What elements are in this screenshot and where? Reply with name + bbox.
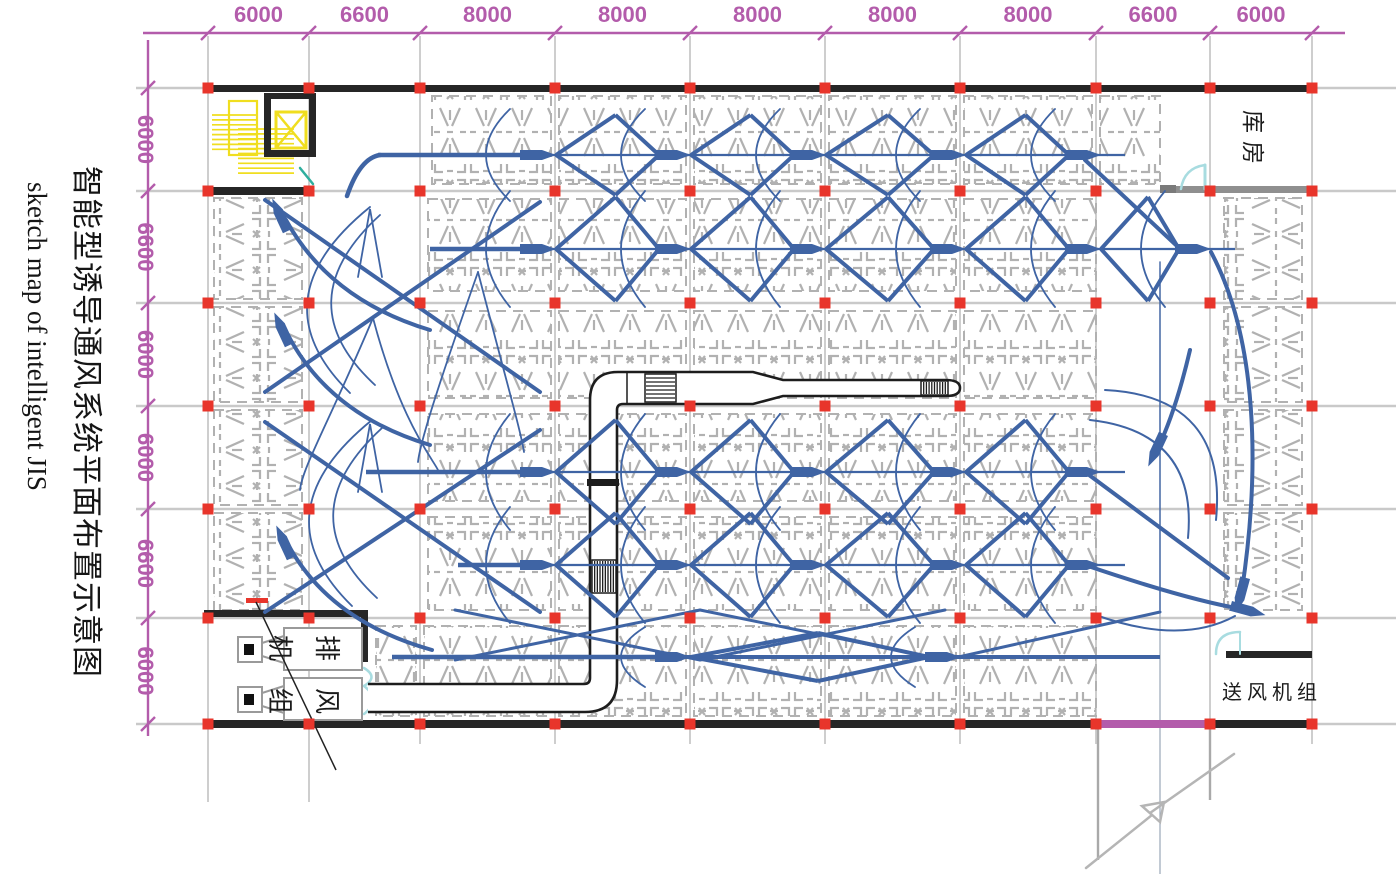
grid-intersection-marker — [685, 504, 696, 515]
grid-intersection-marker — [1091, 504, 1102, 515]
grid-intersection-marker — [955, 719, 966, 730]
grid-intersection-marker — [955, 298, 966, 309]
grid-intersection-marker — [415, 186, 426, 197]
dimension-label-left: 6000 — [133, 330, 158, 379]
grid-intersection-marker — [550, 401, 561, 412]
grid-intersection-marker — [304, 83, 315, 94]
grid-intersection-marker — [1091, 719, 1102, 730]
floor-plan-canvas: 6000660080008000800080008000660060006000… — [0, 0, 1400, 876]
grid-intersection-marker — [820, 613, 831, 624]
exhaust-unit-char-ji: 机 — [263, 635, 300, 661]
drawing-sheet: 6000660080008000800080008000660060006000… — [0, 0, 1400, 876]
grid-intersection-marker — [304, 401, 315, 412]
grid-intersection-marker — [415, 401, 426, 412]
grid-intersection-marker — [550, 83, 561, 94]
parking-stall-row — [214, 410, 302, 505]
grid-intersection-marker — [415, 504, 426, 515]
grid-intersection-marker — [1205, 83, 1216, 94]
grid-intersection-marker — [1307, 83, 1318, 94]
grid-intersection-marker — [415, 719, 426, 730]
exhaust-unit-char-zu: 组 — [263, 688, 300, 714]
jet-fan-arrow — [1175, 244, 1211, 254]
grid-intersection-marker — [685, 719, 696, 730]
grid-intersection-marker — [1091, 401, 1102, 412]
exhaust-unit-char-feng: 风 — [310, 688, 347, 714]
dimension-label-left: 6000 — [133, 115, 158, 164]
grid-intersection-marker — [304, 504, 315, 515]
drawing-title-chinese: 智能型诱导通风系统平面布置示意图 — [67, 166, 112, 678]
grid-intersection-marker — [820, 83, 831, 94]
grid-intersection-marker — [685, 186, 696, 197]
grid-intersection-marker — [685, 401, 696, 412]
grid-intersection-marker — [1307, 504, 1318, 515]
dimension-label-top: 6600 — [340, 2, 389, 27]
grid-intersection-marker — [1307, 613, 1318, 624]
grid-intersection-marker — [1307, 298, 1318, 309]
parking-stall-row — [964, 96, 1092, 184]
parking-stall-row — [214, 307, 302, 402]
grid-intersection-marker — [203, 186, 214, 197]
dimension-label-top: 6000 — [234, 2, 283, 27]
grid-intersection-marker — [955, 186, 966, 197]
dimension-label-left: 6600 — [133, 223, 158, 272]
grid-intersection-marker — [1205, 401, 1216, 412]
grid-intersection-marker — [550, 504, 561, 515]
grid-intersection-marker — [550, 613, 561, 624]
grid-intersection-marker — [1205, 298, 1216, 309]
parking-stall-row — [428, 414, 551, 501]
dimension-label-top: 8000 — [1004, 2, 1053, 27]
grid-intersection-marker — [304, 719, 315, 730]
grid-intersection-marker — [1205, 504, 1216, 515]
grid-intersection-marker — [685, 83, 696, 94]
parking-stall-row — [432, 96, 551, 184]
grid-intersection-marker — [304, 186, 315, 197]
grid-intersection-marker — [955, 401, 966, 412]
grid-intersection-marker — [550, 298, 561, 309]
grid-intersection-marker — [203, 719, 214, 730]
grid-intersection-marker — [685, 298, 696, 309]
grid-intersection-marker — [304, 298, 315, 309]
dimension-label-top: 6000 — [1237, 2, 1286, 27]
grid-intersection-marker — [415, 83, 426, 94]
grid-intersection-marker — [1205, 186, 1216, 197]
dimension-label-left: 6000 — [133, 647, 158, 696]
grid-intersection-marker — [820, 401, 831, 412]
grid-intersection-marker — [550, 186, 561, 197]
grid-intersection-marker — [955, 83, 966, 94]
parking-stall-row — [1224, 198, 1302, 299]
dimension-label-top: 6600 — [1129, 2, 1178, 27]
grid-intersection-marker — [1205, 613, 1216, 624]
grid-intersection-marker — [685, 613, 696, 624]
room-label-storehouse: 库房 — [1238, 110, 1272, 172]
exhaust-fan-units — [238, 598, 362, 770]
grid-intersection-marker — [820, 186, 831, 197]
grid-intersection-marker — [1091, 298, 1102, 309]
grid-intersection-marker — [955, 613, 966, 624]
exhaust-unit-char-pai: 排 — [310, 635, 347, 661]
room-label-supply-air-unit: 送风机组 — [1222, 676, 1322, 705]
grid-intersection-marker — [1307, 401, 1318, 412]
grid-intersection-marker — [203, 401, 214, 412]
parking-stall-row — [1100, 96, 1160, 184]
parking-stall-row — [964, 311, 1096, 398]
parking-stall-row — [214, 198, 302, 299]
grid-intersection-marker — [415, 298, 426, 309]
grid-intersection-marker — [820, 504, 831, 515]
stairs-elevator — [212, 93, 316, 173]
grid-intersection-marker — [415, 613, 426, 624]
grid-intersection-marker — [550, 719, 561, 730]
grid-intersection-marker — [203, 504, 214, 515]
grid-intersection-marker — [1091, 186, 1102, 197]
grid-intersection-marker — [1307, 186, 1318, 197]
grid-intersection-marker — [820, 298, 831, 309]
grid-intersection-marker — [203, 83, 214, 94]
dimension-label-top: 8000 — [733, 2, 782, 27]
grid-intersection-marker — [203, 613, 214, 624]
grid-intersection-marker — [1091, 613, 1102, 624]
dimension-label-left: 6000 — [133, 433, 158, 482]
parking-stall-row — [1224, 410, 1302, 505]
grid-intersection-marker — [304, 613, 315, 624]
dimension-label-top: 8000 — [598, 2, 647, 27]
grid-intersection-marker — [203, 298, 214, 309]
dimension-label-top: 8000 — [463, 2, 512, 27]
grid-intersection-marker — [1205, 719, 1216, 730]
dimension-label-top: 8000 — [868, 2, 917, 27]
grid-intersection-marker — [955, 504, 966, 515]
grid-intersection-marker — [1307, 719, 1318, 730]
dimension-label-left: 6600 — [133, 539, 158, 588]
drawing-title-english: sketch map of intelligent JIS — [21, 182, 52, 491]
grid-intersection-marker — [1091, 83, 1102, 94]
grid-intersection-marker — [820, 719, 831, 730]
